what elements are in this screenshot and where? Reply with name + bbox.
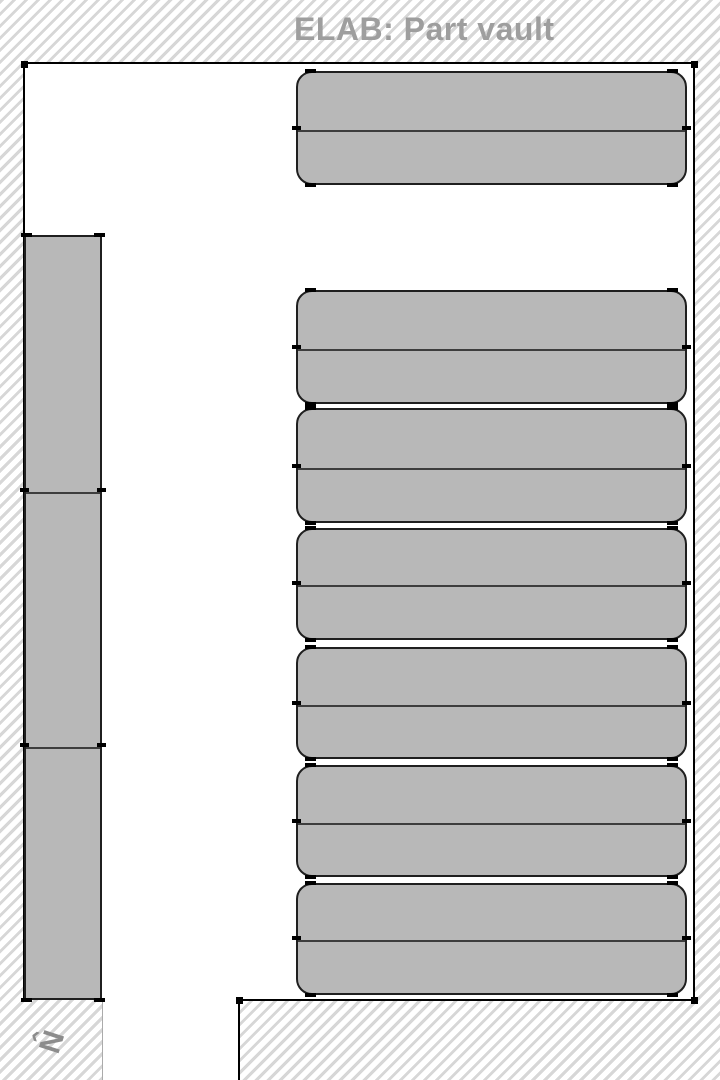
endpoint-marker [94, 233, 105, 237]
endpoint-marker [305, 645, 316, 649]
endpoint-marker [292, 581, 301, 585]
endpoint-marker [94, 998, 105, 1002]
endpoint-marker [682, 126, 691, 130]
endpoint-marker [292, 464, 301, 468]
endpoint-marker [305, 526, 316, 530]
endpoint-marker [667, 183, 678, 187]
endpoint-marker [305, 881, 316, 885]
shelf-divider [298, 468, 685, 470]
rack-row-7[interactable] [296, 883, 687, 995]
endpoint-marker [20, 488, 29, 492]
endpoint-marker [667, 638, 678, 642]
shelf-divider [298, 130, 685, 132]
rack-row-2[interactable] [296, 290, 687, 404]
rack-row-6[interactable] [296, 765, 687, 877]
endpoint-marker [305, 69, 316, 73]
endpoint-marker [667, 69, 678, 73]
endpoint-marker [682, 581, 691, 585]
doorway-wall-left [102, 1001, 103, 1080]
endpoint-marker [682, 819, 691, 823]
shelf-divider [298, 585, 685, 587]
rack-row-5[interactable] [296, 647, 687, 759]
endpoint-marker [20, 743, 29, 747]
endpoint-marker [667, 288, 678, 292]
endpoint-marker [97, 488, 106, 492]
wall-bottom [238, 999, 696, 1001]
endpoint-marker [292, 819, 301, 823]
wall-rack-west[interactable] [24, 235, 102, 1000]
rack-row-3[interactable] [296, 408, 687, 523]
endpoint-marker [305, 521, 316, 525]
wall-corner-marker [236, 997, 243, 1004]
wall-right [693, 62, 695, 1001]
shelf-divider [26, 747, 100, 749]
shelf-divider [26, 492, 100, 494]
wall-corner-marker [691, 997, 698, 1004]
endpoint-marker [292, 936, 301, 940]
shelf-divider [298, 349, 685, 351]
endpoint-marker [682, 464, 691, 468]
rack-row-1[interactable] [296, 71, 687, 185]
doorway-wall-right [238, 999, 240, 1080]
endpoint-marker [305, 638, 316, 642]
shelf-divider [298, 823, 685, 825]
endpoint-marker [305, 993, 316, 997]
endpoint-marker [682, 345, 691, 349]
endpoint-marker [667, 881, 678, 885]
endpoint-marker [682, 936, 691, 940]
endpoint-marker [21, 233, 32, 237]
endpoint-marker [667, 406, 678, 410]
wall-corner-marker [21, 61, 28, 68]
endpoint-marker [305, 875, 316, 879]
endpoint-marker [667, 763, 678, 767]
endpoint-marker [667, 521, 678, 525]
endpoint-marker [667, 993, 678, 997]
endpoint-marker [305, 763, 316, 767]
rack-row-4[interactable] [296, 528, 687, 640]
endpoint-marker [667, 526, 678, 530]
shelf-divider [298, 940, 685, 942]
endpoint-marker [292, 126, 301, 130]
endpoint-marker [305, 406, 316, 410]
north-label: N [33, 1026, 68, 1056]
endpoint-marker [667, 875, 678, 879]
wall-corner-marker [691, 61, 698, 68]
endpoint-marker [667, 757, 678, 761]
endpoint-marker [305, 183, 316, 187]
endpoint-marker [292, 345, 301, 349]
endpoint-marker [682, 701, 691, 705]
endpoint-marker [305, 757, 316, 761]
wall-top [23, 62, 696, 64]
shelf-divider [298, 705, 685, 707]
endpoint-marker [667, 645, 678, 649]
endpoint-marker [97, 743, 106, 747]
endpoint-marker [292, 701, 301, 705]
page-title: ELAB: Part vault [294, 11, 554, 48]
endpoint-marker [305, 288, 316, 292]
doorway-floor [103, 1000, 239, 1080]
endpoint-marker [21, 998, 32, 1002]
